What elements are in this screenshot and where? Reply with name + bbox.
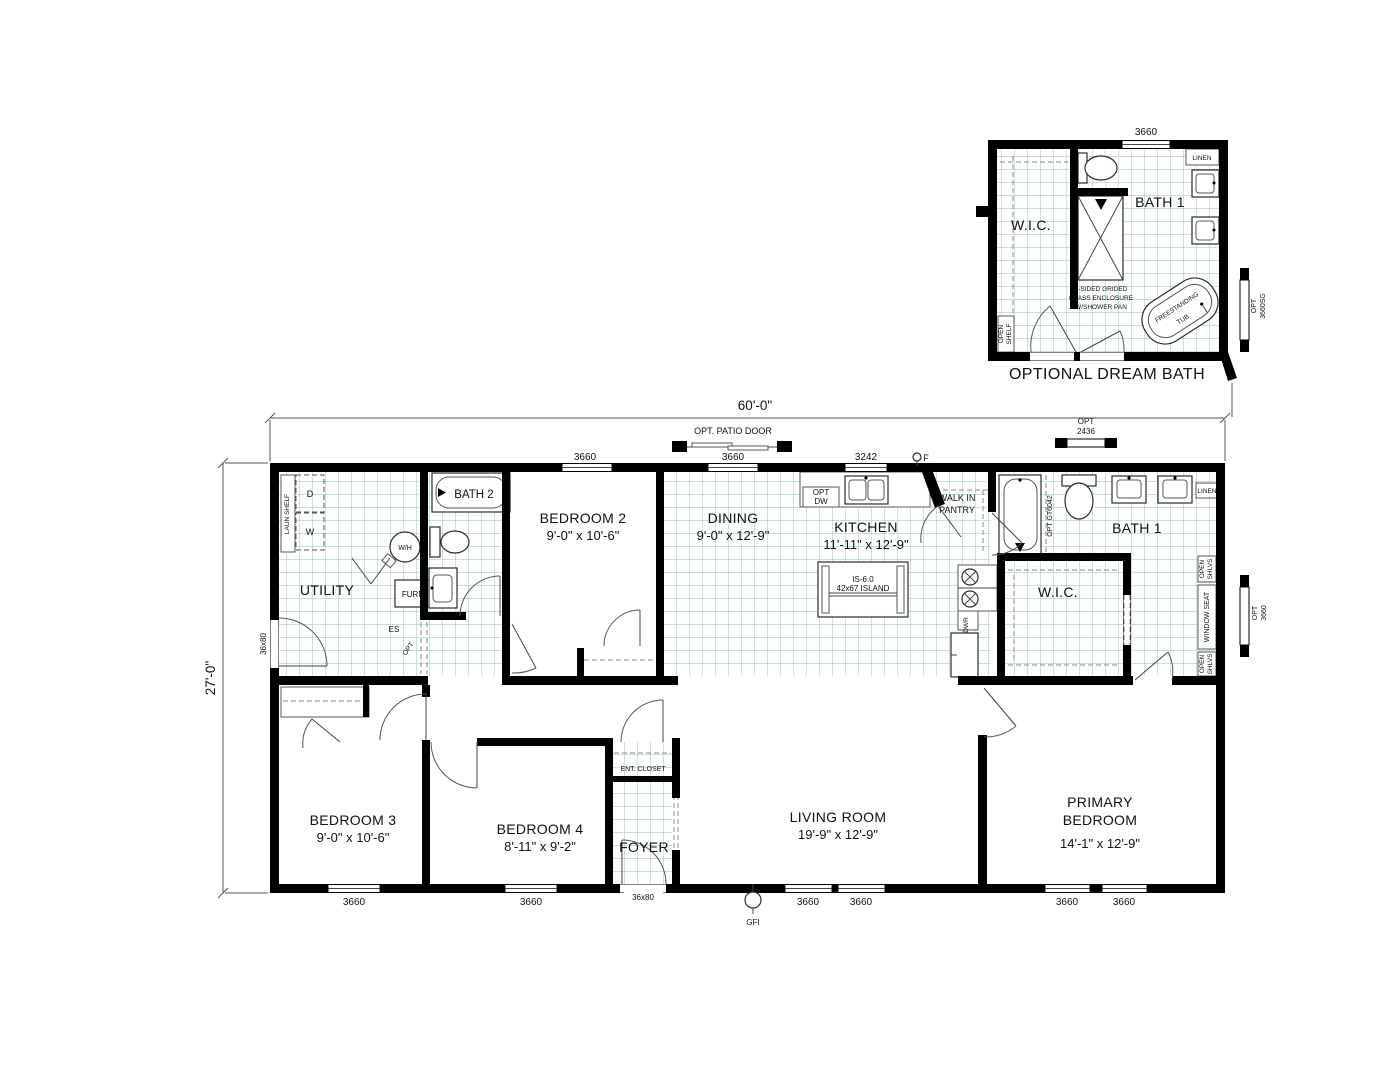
furnace-label: FURN xyxy=(402,590,424,599)
dwr-label: DWR xyxy=(963,617,970,633)
wic-label: W.I.C. xyxy=(1038,584,1078,600)
opt-tub-label: OPT GT6042 xyxy=(1047,495,1054,537)
open-shelf-label: SHELF xyxy=(1006,323,1013,344)
es-label: ES xyxy=(389,625,400,634)
door-opening xyxy=(1080,353,1124,361)
dim: 3660 xyxy=(520,897,543,908)
window xyxy=(838,885,885,893)
kitchen-label: KITCHEN xyxy=(834,519,898,535)
overall-height-dim: 27'-0" xyxy=(203,661,218,696)
laun-shelf-label: LAUN SHELF xyxy=(284,494,291,534)
sink xyxy=(1192,217,1219,244)
dim: 3660 xyxy=(1113,897,1136,908)
dryer-label: D xyxy=(307,489,314,499)
bath2-label: BATH 2 xyxy=(454,489,493,501)
dim: 3660 xyxy=(574,452,597,463)
primary-label: PRIMARY xyxy=(1067,794,1133,810)
bath2-sink xyxy=(429,568,457,608)
gf-label: F xyxy=(923,453,929,463)
linen-label: LINEN xyxy=(1197,488,1216,495)
dim: 3660 xyxy=(797,897,820,908)
ent-closet-label: ENT. CLOSET xyxy=(620,766,666,773)
primary-size: 14'-1" x 12'-9" xyxy=(1060,836,1140,851)
shower xyxy=(1078,196,1123,280)
gfi-label: GFI xyxy=(746,918,759,927)
bedroom3-size: 9'-0" x 10'-6" xyxy=(317,830,390,845)
open-shlvs-label: OPEN xyxy=(1199,654,1206,673)
open-shlvs-label: OPEN xyxy=(1199,559,1206,578)
bath1-tub xyxy=(999,475,1041,555)
window xyxy=(785,885,832,893)
pantry-label: WALK IN xyxy=(939,493,976,503)
shower-note: W/SHOWER PAN xyxy=(1075,304,1127,311)
utility-door-opening xyxy=(271,620,279,668)
refrigerator xyxy=(951,633,978,677)
overall-width-dim: 60'-0" xyxy=(738,398,773,413)
window xyxy=(708,464,758,472)
opt-window-label: 3660SG xyxy=(1260,293,1267,319)
door-opening xyxy=(1030,353,1074,361)
foyer-label: FOYER xyxy=(619,839,669,855)
window xyxy=(1102,885,1147,893)
bath1-label: BATH 1 xyxy=(1135,194,1185,210)
dim-3660: 3660 xyxy=(1135,127,1158,138)
front-door-dim: 36x80 xyxy=(632,893,654,902)
shower-note: GLASS ENCLOSURE xyxy=(1069,295,1134,302)
dim: 3660 xyxy=(722,452,745,463)
bedroom2-size: 9'-0" x 10'-6" xyxy=(547,528,620,543)
dim: 3660 xyxy=(1056,897,1079,908)
window xyxy=(1045,885,1090,893)
window-seat-label: WINDOW SEAT xyxy=(1204,591,1211,642)
linen-label: LINEN xyxy=(1192,155,1211,162)
wic-label: W.I.C. xyxy=(1011,217,1051,233)
water-heater-label: W/H xyxy=(398,545,412,552)
opt-window-label: 3660 xyxy=(1261,605,1268,621)
opt-window-3660 xyxy=(1240,575,1249,657)
bedroom3-closet xyxy=(281,685,369,717)
main-plan: 60'-0" 27'-0" xyxy=(203,383,1268,927)
floor-plan-image: 3660 LINEN BATH 1 W.I.C. 2-SIDED GRIDED … xyxy=(0,0,1400,1082)
bedroom3-label: BEDROOM 3 xyxy=(310,812,397,828)
shower-note: 2-SIDED GRIDED xyxy=(1075,286,1128,293)
bedroom4-size: 8'-11" x 9'-2" xyxy=(504,839,576,854)
opt-dw-label: OPT xyxy=(813,488,830,497)
washer-label: W xyxy=(306,527,315,537)
opt2436-label: 2436 xyxy=(1077,427,1095,436)
bedroom4-label: BEDROOM 4 xyxy=(497,821,584,837)
dining-size: 9'-0" x 12'-9" xyxy=(697,528,770,543)
bedroom2-label: BEDROOM 2 xyxy=(540,510,627,526)
opt2436-label: OPT xyxy=(1078,417,1095,426)
bath1-label: BATH 1 xyxy=(1112,520,1162,536)
utility-label: UTILITY xyxy=(300,582,355,598)
dim: 3242 xyxy=(855,452,878,463)
wic-opening xyxy=(1124,595,1131,645)
opt-dw-label: DW xyxy=(814,497,828,506)
opt-window-label: OPT xyxy=(1252,605,1259,620)
dream-bath-title: OPTIONAL DREAM BATH xyxy=(1009,366,1205,383)
opt-window-2436 xyxy=(1055,438,1117,448)
opt-window-label: OPT xyxy=(1251,298,1258,313)
floor-plan-page: 3660 LINEN BATH 1 W.I.C. 2-SIDED GRIDED … xyxy=(0,0,1400,1082)
dim: 3660 xyxy=(343,897,366,908)
utility-door-dim: 36x80 xyxy=(259,633,268,655)
open-shlvs-label: SHLVS xyxy=(1207,558,1214,579)
living-label: LIVING ROOM xyxy=(790,809,887,825)
patio-door-label: OPT. PATIO DOOR xyxy=(694,426,772,436)
window xyxy=(328,885,380,893)
primary-label: BEDROOM xyxy=(1063,812,1137,828)
opt-window-3660sg xyxy=(1240,268,1249,352)
dim: 3660 xyxy=(850,897,873,908)
sink xyxy=(1192,170,1219,197)
living-size: 19'-9" x 12'-9" xyxy=(798,827,878,842)
dream-bath-plan: 3660 LINEN BATH 1 W.I.C. 2-SIDED GRIDED … xyxy=(976,127,1267,383)
window xyxy=(562,464,612,472)
dining-label: DINING xyxy=(708,510,759,526)
kitchen-size: 11'-11" x 12'-9" xyxy=(823,537,909,552)
open-shelf-label: OPEN xyxy=(998,324,1005,343)
island-label: 42x67 ISLAND xyxy=(837,584,890,593)
window xyxy=(845,464,887,472)
window xyxy=(505,885,557,893)
island-label: IS-6.0 xyxy=(852,575,874,584)
opt-patio-door xyxy=(672,441,792,452)
open-shlvs-label: SHLVS xyxy=(1207,653,1214,674)
pantry-label: PANTRY xyxy=(939,505,975,515)
